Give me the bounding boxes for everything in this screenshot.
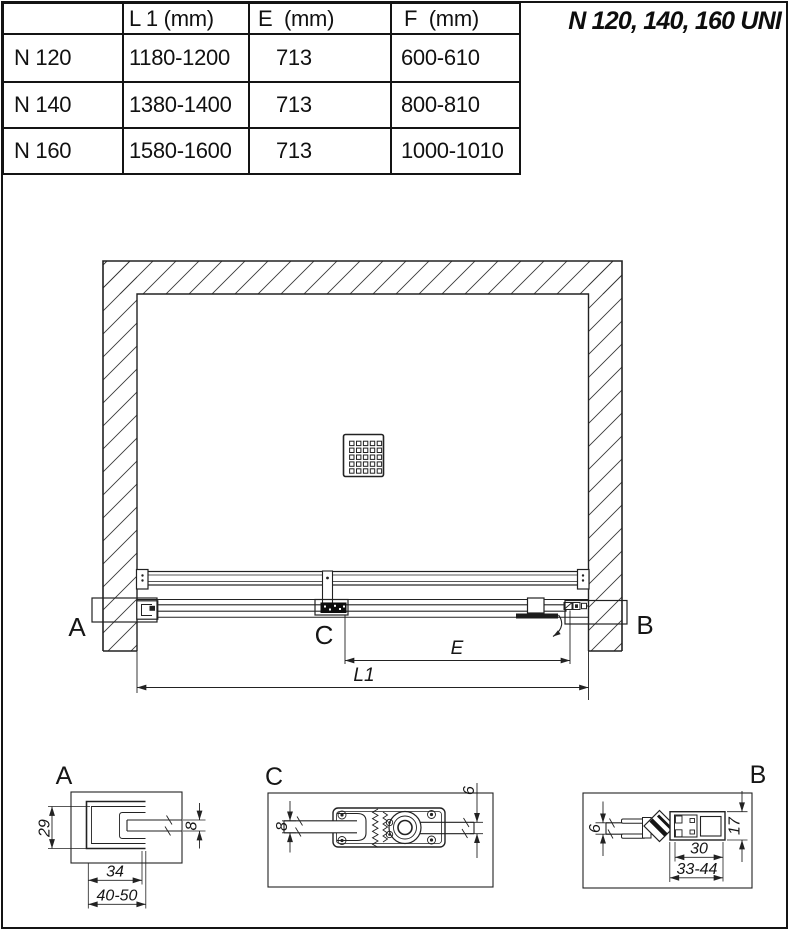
drain-hole <box>357 462 361 466</box>
header-f: F (mm) <box>391 3 520 34</box>
extension-lines <box>137 611 589 701</box>
main-label-a: A <box>68 612 86 642</box>
screw-dot <box>141 574 143 576</box>
header-e: E (mm) <box>249 3 391 34</box>
cell-l1: 1180-1200 <box>123 34 249 82</box>
cell-model: N 140 <box>3 82 123 128</box>
b-fitting-part <box>582 603 587 608</box>
drain-hole <box>363 455 367 459</box>
detail-b: B 6 <box>583 761 766 888</box>
c-right-glass-break <box>462 818 469 838</box>
main-plan-view: A C B E L1 <box>68 261 653 700</box>
drain-hole <box>357 441 361 445</box>
connector-dot <box>339 608 341 610</box>
a-glass-fill <box>127 820 182 831</box>
header-l1: L 1 (mm) <box>123 3 249 34</box>
main-label-c: C <box>315 620 334 650</box>
c-corner-screw-dot <box>340 839 343 842</box>
drain-hole <box>363 462 367 466</box>
drain-hole <box>377 462 381 466</box>
drain-hole <box>350 448 354 452</box>
screw-dot <box>326 577 329 580</box>
b-fitting-core <box>575 604 578 608</box>
table-row: N 160 1580-1600 713 1000-1010 <box>3 128 520 174</box>
spec-table: L 1 (mm) E (mm) F (mm) N 120 1180-1200 7… <box>2 2 521 175</box>
c-screw-dot <box>388 821 391 824</box>
wall-profile-b <box>564 603 589 610</box>
wall-hatch-top <box>103 261 622 294</box>
cell-f: 800-810 <box>391 82 520 128</box>
b-dim-6-label: 6 <box>587 824 604 833</box>
table-row: N 120 1180-1200 713 600-610 <box>3 34 520 82</box>
b-dim-17-label: 17 <box>727 816 744 835</box>
wall-hatch-right <box>589 261 623 651</box>
c-corner-screw-dot <box>430 813 433 816</box>
drain-hole <box>377 441 381 445</box>
table-row: N 140 1380-1400 713 800-810 <box>3 82 520 128</box>
wall-outer-outline <box>103 261 622 651</box>
drain-hole <box>377 469 381 473</box>
b-seal-cap-bottom <box>622 834 646 838</box>
detail-c-label: C <box>265 763 283 791</box>
rail-center-post <box>323 571 333 603</box>
drain-hole <box>350 455 354 459</box>
center-connector <box>321 603 347 614</box>
drain-hole <box>357 469 361 473</box>
door-knob <box>528 598 545 613</box>
detail-c: C <box>265 763 493 887</box>
a-dim-34-label: 34 <box>106 863 124 880</box>
glass-end-block <box>150 606 156 611</box>
wall-hatch-left <box>103 261 137 651</box>
drain-hole <box>370 441 374 445</box>
drain-hole <box>370 469 374 473</box>
cell-e: 713 <box>249 128 391 174</box>
cell-model: N 120 <box>3 34 123 82</box>
detail-b-label: B <box>750 761 767 789</box>
technical-sheet: A C B E L1 A 29 <box>0 0 790 930</box>
connector-dot <box>324 606 326 608</box>
drain-hole <box>363 441 367 445</box>
screw-dot <box>141 579 143 581</box>
dim-label-l1: L1 <box>353 665 374 686</box>
drain-grid-holes <box>350 441 382 473</box>
drain-hole <box>363 448 367 452</box>
drain-hole <box>377 455 381 459</box>
door-stopper-plate <box>516 614 558 619</box>
cell-model: N 160 <box>3 128 123 174</box>
dimension-lines: E L1 <box>137 611 589 701</box>
screw-dot <box>582 574 584 576</box>
main-label-b: B <box>636 610 653 640</box>
c-corner-screw-dot <box>340 813 343 816</box>
door-track <box>137 598 589 637</box>
connector-dot <box>334 605 336 607</box>
header-model <box>3 3 123 34</box>
drain-hole <box>350 462 354 466</box>
cell-f: 1000-1010 <box>391 128 520 174</box>
c-ext-6 <box>470 822 483 833</box>
c-screw-dot <box>388 833 391 836</box>
rail-bar <box>137 572 589 586</box>
a-dim-40-50-label: 40-50 <box>97 887 138 904</box>
drain-hole <box>363 469 367 473</box>
rail-right-bracket <box>578 570 590 590</box>
page-title: N 120, 140, 160 UNI <box>568 7 781 36</box>
cell-e: 713 <box>249 82 391 128</box>
support-rail <box>137 570 590 604</box>
a-dim-8-label: 8 <box>184 822 201 831</box>
drain-hole <box>377 448 381 452</box>
detail-b-box <box>583 793 752 888</box>
drain-hole <box>350 469 354 473</box>
c-dim-6-label: 6 <box>461 786 478 795</box>
connector-dot <box>343 606 345 608</box>
c-corner-screw-dot <box>430 838 433 841</box>
drain-hole <box>370 462 374 466</box>
a-ext-29 <box>48 807 90 849</box>
floor-drain <box>344 435 384 477</box>
cell-e: 713 <box>249 34 391 82</box>
sliding-glass-edge <box>151 605 566 611</box>
cell-l1: 1380-1400 <box>123 82 249 128</box>
drain-hole <box>370 455 374 459</box>
detail-a: A 29 8 34 40-50 <box>37 762 206 909</box>
b-seal-cap-top <box>622 819 646 823</box>
drain-hole <box>357 455 361 459</box>
cell-f: 600-610 <box>391 34 520 82</box>
dim-label-e: E <box>451 638 464 659</box>
wall-inner-outline <box>137 294 589 651</box>
cell-l1: 1580-1600 <box>123 128 249 174</box>
detail-a-label: A <box>56 762 73 790</box>
drain-hole <box>357 448 361 452</box>
drain-hole <box>370 448 374 452</box>
b-dim-30-label: 30 <box>690 840 708 857</box>
a-dim-29-label: 29 <box>37 819 54 838</box>
connector-dot <box>329 609 331 611</box>
rail-left-bracket <box>137 570 149 590</box>
drain-hole <box>350 441 354 445</box>
b-glass-fill <box>606 823 641 834</box>
b-dim-33-44-label: 33-44 <box>677 861 718 878</box>
c-left-glass-fill <box>284 821 353 833</box>
table-header-row: L 1 (mm) E (mm) F (mm) <box>3 3 520 34</box>
screw-dot <box>582 579 584 581</box>
c-dim-8-label: 8 <box>274 822 291 831</box>
